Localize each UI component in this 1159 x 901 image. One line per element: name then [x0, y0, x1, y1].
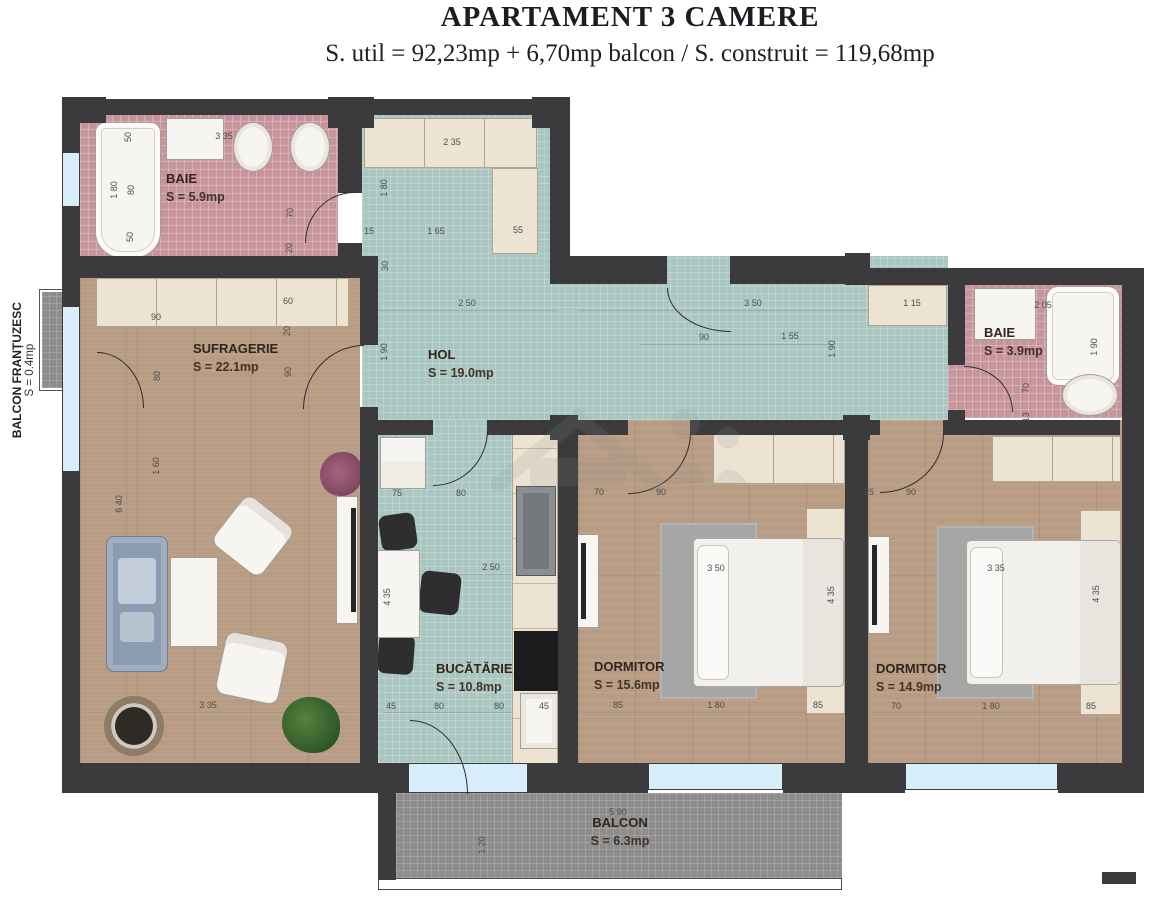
dimension-label: 1 80 — [109, 181, 119, 199]
room-label-hol: HOL S = 19.0mp — [428, 348, 494, 380]
dimension-label: 1 80 — [379, 179, 389, 197]
shower — [1046, 286, 1120, 386]
dimension-line — [582, 712, 842, 713]
dimension-label: 3 50 — [707, 563, 725, 573]
dimension-line — [368, 310, 558, 311]
dimension-label: 80 — [456, 488, 466, 498]
chair — [377, 633, 416, 675]
wall — [360, 256, 378, 345]
dimension-label: 6 40 — [114, 495, 124, 513]
dimension-line — [126, 290, 127, 755]
wall — [865, 268, 1122, 285]
dimension-label: 4 35 — [382, 588, 392, 606]
room-label-baie1: BAIE S = 5.9mp — [166, 172, 225, 204]
dimension-label: 4 35 — [1091, 585, 1101, 603]
wall — [360, 407, 378, 793]
room-area: S = 6.3mp — [540, 834, 700, 848]
room-label-dormitor2: DORMITOR S = 14.9mp — [876, 662, 947, 694]
room-label-balcon: BALCON S = 6.3mp — [540, 816, 700, 848]
page-title: APARTAMENT 3 CAMERE — [100, 1, 1159, 34]
wall — [730, 256, 850, 284]
dimension-label: 70 — [1021, 383, 1031, 393]
window — [648, 763, 783, 790]
wall — [378, 793, 396, 880]
dimension-label: 13 — [1021, 412, 1031, 422]
cooktop — [514, 631, 558, 691]
flowers — [320, 452, 362, 496]
dimension-label: 2 50 — [458, 298, 476, 308]
dimension-label: 3 50 — [744, 298, 762, 308]
sofa — [106, 536, 168, 672]
room-name: BAIE — [166, 171, 197, 186]
dimension-line — [640, 344, 835, 345]
toilet — [1062, 374, 1118, 416]
dimension-label: 25 — [864, 487, 874, 497]
wall — [62, 763, 408, 793]
dimension-label: 1 55 — [781, 331, 799, 341]
room-area: S = 0.4mp — [24, 294, 38, 446]
room-area: S = 10.8mp — [436, 680, 513, 694]
french-balcony-deck — [40, 290, 64, 390]
dimension-label: 4 35 — [826, 586, 836, 604]
dimension-label: 3 35 — [987, 563, 1005, 573]
wall — [62, 472, 80, 793]
wall — [943, 420, 1120, 435]
dimension-label: 15 — [364, 226, 374, 236]
wall — [528, 763, 648, 793]
bidet — [290, 122, 330, 172]
room-area: S = 3.9mp — [984, 344, 1043, 358]
dimension-label: 90 — [283, 367, 293, 377]
wall — [1102, 872, 1136, 884]
wall — [783, 763, 905, 793]
armchair — [214, 630, 290, 706]
dimension-label: 80 — [152, 371, 162, 381]
wall — [378, 420, 433, 435]
fridge — [380, 437, 426, 489]
toilet — [233, 122, 273, 172]
dimension-label: 80 — [434, 701, 444, 711]
room-label-baie2: BAIE S = 3.9mp — [984, 326, 1043, 358]
dimension-label: 90 — [151, 312, 161, 322]
room-area: S = 14.9mp — [876, 680, 947, 694]
bedroom2-wardrobe — [992, 436, 1121, 482]
dimension-label: 1 65 — [427, 226, 445, 236]
dimension-label: 1 15 — [903, 298, 921, 308]
dimension-label: 85 — [613, 700, 623, 710]
wall — [338, 115, 362, 193]
room-label-sufragerie: SUFRAGERIE S = 22.1mp — [193, 342, 278, 374]
room-name: DORMITOR — [876, 661, 947, 676]
dimension-label: 1 20 — [477, 836, 487, 854]
sofa-cushion — [118, 558, 156, 604]
room-area: S = 5.9mp — [166, 190, 225, 204]
room-area: S = 22.1mp — [193, 360, 278, 374]
wall — [62, 99, 570, 115]
dimension-label: 2 35 — [443, 137, 461, 147]
window — [905, 763, 1058, 790]
chair — [418, 570, 462, 616]
room-area: S = 15.6mp — [594, 678, 665, 692]
dimension-label: 60 — [283, 296, 293, 306]
dimension-label: 1 60 — [151, 457, 161, 475]
tv — [581, 543, 586, 619]
window — [62, 152, 80, 207]
room-name: DORMITOR — [594, 659, 665, 674]
room-name: BAIE — [984, 325, 1015, 340]
room-name: HOL — [428, 347, 455, 362]
wall — [550, 256, 667, 284]
dimension-label: 20 — [284, 243, 294, 253]
dimension-label: 90 — [906, 487, 916, 497]
room-label-balcon-frantuzesc: BALCON FRANȚUZESC S = 0.4mp — [10, 294, 38, 446]
dimension-label: 1 90 — [827, 340, 837, 358]
dimension-label: 90 — [699, 332, 709, 342]
dimension-label: 1 80 — [707, 700, 725, 710]
round-table — [104, 696, 164, 756]
dimension-label: 75 — [392, 488, 402, 498]
dimension-label: 70 — [594, 487, 604, 497]
room-name: BUCĂTĂRIE — [436, 661, 513, 676]
room-label-dormitor1: DORMITOR S = 15.6mp — [594, 660, 665, 692]
livingroom-wardrobe — [96, 278, 349, 327]
dimension-label: 2 05 — [1034, 300, 1052, 310]
dimension-label: 85 — [813, 700, 823, 710]
dimension-label: 50 — [125, 232, 135, 242]
room-name: SUFRAGERIE — [193, 341, 278, 356]
dimension-label: 5 90 — [609, 807, 627, 817]
dimension-label: 90 — [656, 487, 666, 497]
wall — [1058, 763, 1140, 793]
tv — [351, 508, 356, 612]
room-name: BALCON FRANȚUZESC — [10, 302, 24, 438]
dimension-label: 30 — [380, 261, 390, 271]
room-name: BALCON — [592, 815, 648, 830]
wall — [62, 207, 80, 308]
sofa-cushion — [120, 612, 154, 642]
plant — [282, 697, 340, 753]
wall — [550, 115, 570, 261]
dimension-label: 45 — [386, 701, 396, 711]
dimension-label: 3 35 — [199, 700, 217, 710]
dimension-label: 45 — [539, 701, 549, 711]
dimension-label: 1 90 — [1089, 338, 1099, 356]
coffee-table — [170, 557, 218, 647]
dimension-label: 1 90 — [379, 343, 389, 361]
dimension-label: 80 — [126, 185, 136, 195]
chair — [378, 512, 419, 553]
dimension-label: 85 — [1086, 701, 1096, 711]
floor-plan-page: APARTAMENT 3 CAMERE S. util = 92,23mp + … — [0, 0, 1159, 901]
wall — [80, 256, 362, 278]
room-area: S = 19.0mp — [428, 366, 494, 380]
dimension-label: 20 — [282, 326, 292, 336]
watermark-logo-icon — [470, 388, 800, 518]
entry-closet — [492, 168, 538, 254]
tv — [872, 545, 877, 625]
dimension-label: 80 — [494, 701, 504, 711]
wall — [948, 283, 965, 365]
dimension-label: 70 — [891, 701, 901, 711]
dimension-label: 2 50 — [482, 562, 500, 572]
balcony-rim — [378, 878, 842, 890]
french-window — [62, 306, 80, 472]
dimension-label: 3 35 — [215, 131, 233, 141]
dimension-label: 1 80 — [982, 701, 1000, 711]
wall — [845, 420, 868, 793]
page-subtitle: S. util = 92,23mp + 6,70mp balcon / S. c… — [100, 40, 1159, 68]
wall — [338, 243, 362, 278]
wall — [1122, 268, 1144, 793]
dimension-label: 50 — [123, 132, 133, 142]
dimension-label: 55 — [513, 225, 523, 235]
room-label-bucatarie: BUCĂTĂRIE S = 10.8mp — [436, 662, 513, 694]
dimension-label: 70 — [285, 208, 295, 218]
wall — [62, 99, 80, 153]
